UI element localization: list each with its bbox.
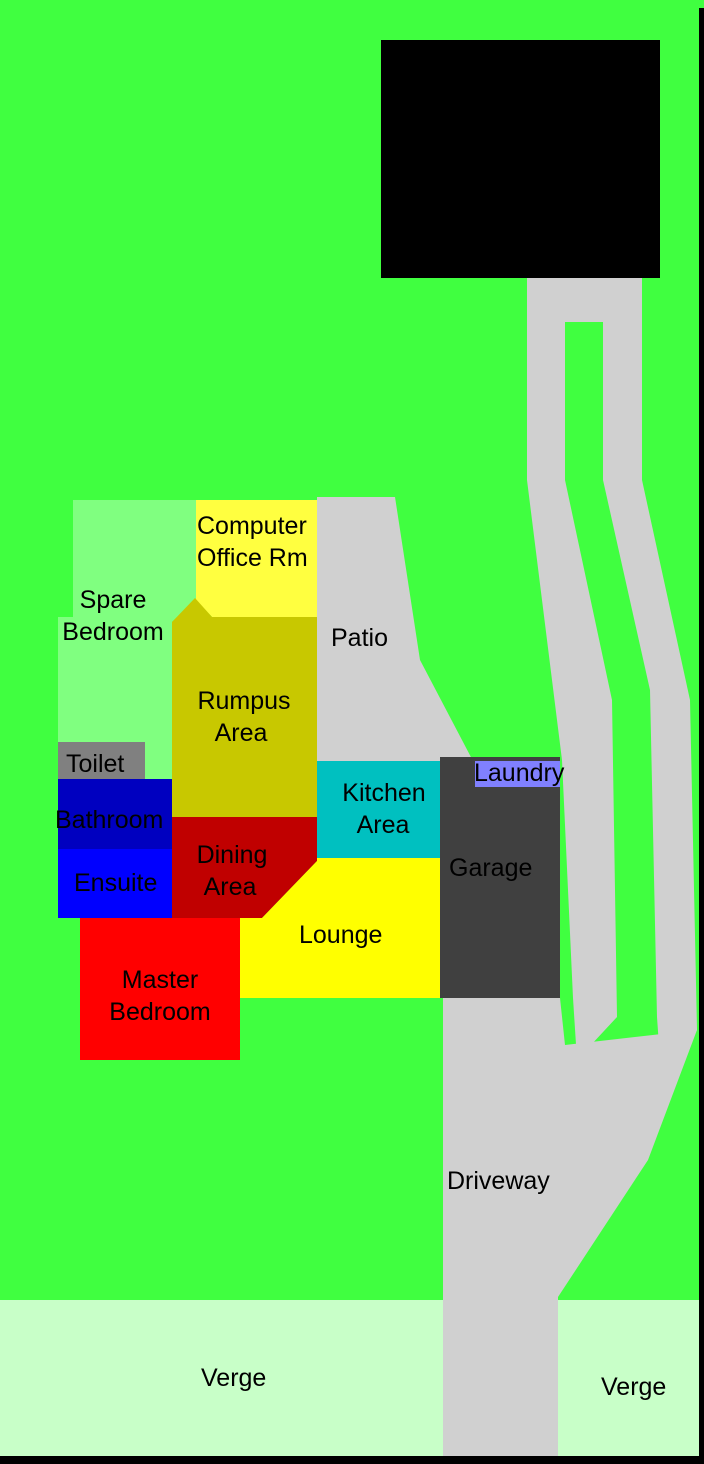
right-border [699,8,704,1464]
dining-label-line2: Area [204,873,257,901]
house-garage-label: Garage [449,854,532,882]
toilet-label: Toilet [66,750,124,778]
lounge-label: Lounge [299,921,382,949]
workshop-garage-building [381,40,660,278]
property-site-plan: Workshop Garage Spare Bedroom Computer O… [0,0,704,1464]
kitchen-area-region [317,761,440,858]
workshop-garage-label: Garage [543,167,630,197]
patio-label: Patio [331,624,388,652]
spare-bedroom-label-line2: Bedroom [62,618,163,646]
rumpus-label-line1: Rumpus [197,687,290,715]
master-bedroom-label-line2: Bedroom [109,998,210,1026]
driveway-stem [527,278,642,322]
spare-bedroom-label-line1: Spare [80,586,147,614]
computer-office-label-line2: Office Rm [197,544,308,572]
driveway-label: Driveway [447,1167,550,1195]
bottom-border [0,1456,704,1464]
verge-right-label: Verge [601,1373,666,1401]
computer-office-label-line1: Computer [197,512,307,540]
site-plan-canvas: Workshop Garage Spare Bedroom Computer O… [0,0,704,1464]
verge-left-label: Verge [201,1364,266,1392]
kitchen-label-line1: Kitchen [342,779,425,807]
kitchen-label-line2: Area [357,811,410,839]
dining-label-line1: Dining [197,841,268,869]
bathroom-label: Bathroom [55,806,163,834]
rumpus-label-line2: Area [215,719,268,747]
laundry-label: Laundry [474,759,565,787]
ensuite-label: Ensuite [74,869,157,897]
master-bedroom-label-line1: Master [122,966,198,994]
workshop-label: Workshop [385,109,502,139]
